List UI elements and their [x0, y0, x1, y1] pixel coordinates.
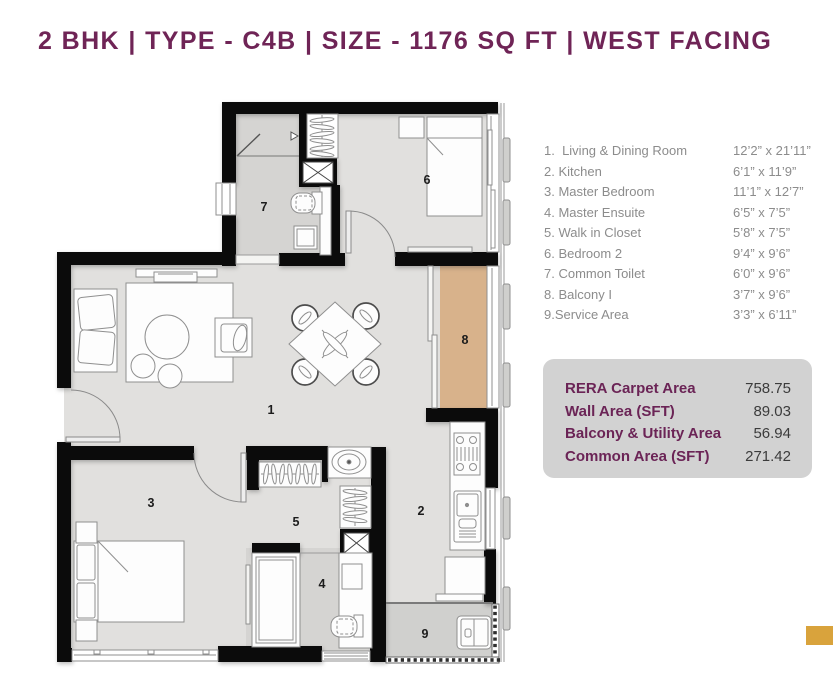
svg-text:4: 4: [319, 577, 326, 591]
svg-text:8: 8: [462, 333, 469, 347]
svg-text:3: 3: [148, 496, 155, 510]
svg-text:1: 1: [268, 403, 275, 417]
svg-text:5: 5: [293, 515, 300, 529]
svg-text:7: 7: [261, 200, 268, 214]
svg-text:9: 9: [422, 627, 429, 641]
svg-text:6: 6: [424, 173, 431, 187]
svg-text:2: 2: [418, 504, 425, 518]
